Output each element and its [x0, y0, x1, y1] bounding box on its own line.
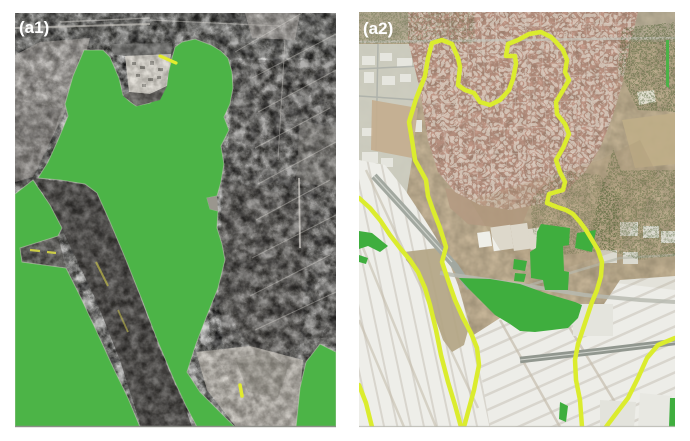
svg-text:(a2): (a2) [363, 19, 393, 38]
svg-text:(a1): (a1) [19, 18, 49, 37]
